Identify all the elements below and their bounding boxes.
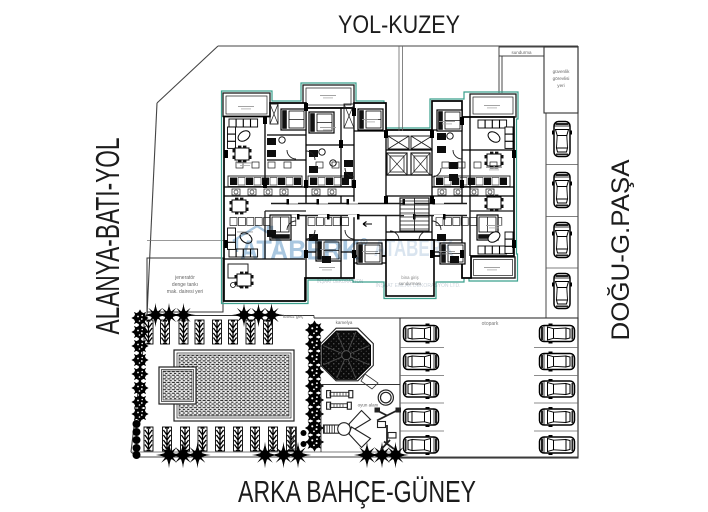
svg-text:yeri: yeri bbox=[557, 83, 564, 88]
svg-text:kamelya: kamelya bbox=[336, 320, 353, 325]
svg-text:ATABERK: ATABERK bbox=[374, 235, 454, 262]
svg-text:mak. dairesi yeri: mak. dairesi yeri bbox=[167, 289, 203, 295]
svg-text:jeneratör: jeneratör bbox=[174, 275, 195, 281]
svg-text:YOL-KUZEY: YOL-KUZEY bbox=[338, 11, 460, 39]
svg-text:otopark: otopark bbox=[482, 321, 499, 327]
svg-text:denge tankı: denge tankı bbox=[172, 282, 198, 288]
svg-text:ATABERK: ATABERK bbox=[240, 235, 360, 266]
svg-text:ARKA BAHÇE-GÜNEY: ARKA BAHÇE-GÜNEY bbox=[238, 474, 476, 509]
svg-text:güvenlik: güvenlik bbox=[553, 69, 571, 74]
svg-text:görevlisi: görevlisi bbox=[553, 76, 570, 81]
svg-text:sundurma: sundurma bbox=[511, 50, 532, 55]
svg-text:İNŞAAT DEKORASYON: İNŞAAT DEKORASYON bbox=[317, 278, 363, 285]
svg-text:bina giriş: bina giriş bbox=[401, 275, 418, 280]
svg-text:oyun alanı: oyun alanı bbox=[358, 403, 379, 408]
svg-text:ALANYA-BATI-YOL: ALANYA-BATI-YOL bbox=[89, 138, 126, 335]
svg-text:DOĞU-G.PAŞA: DOĞU-G.PAŞA bbox=[606, 159, 635, 340]
svg-text:havuz geç: havuz geç bbox=[283, 314, 304, 319]
svg-text:İNŞAAT EMLAK DEKORASYON LTD.: İNŞAAT EMLAK DEKORASYON LTD. bbox=[376, 282, 461, 289]
